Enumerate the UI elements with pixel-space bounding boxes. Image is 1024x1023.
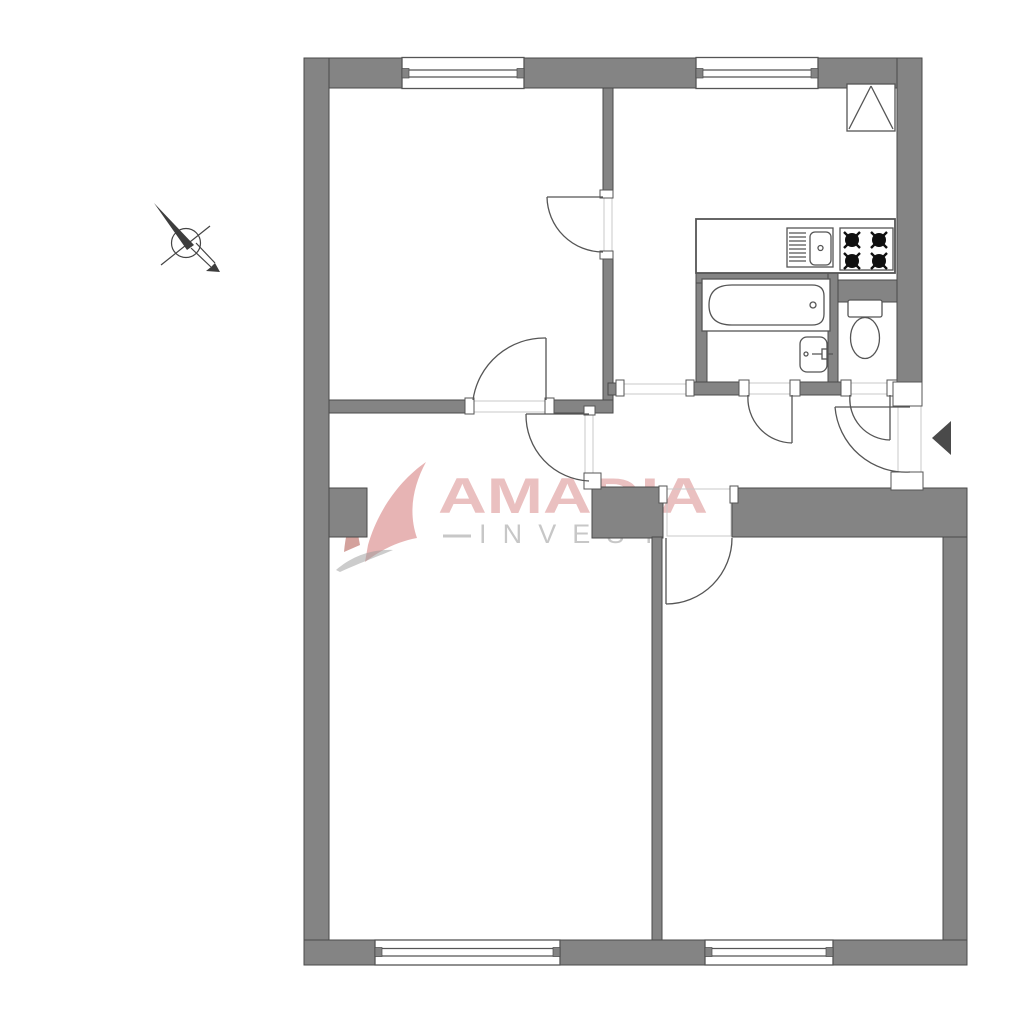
ventilation-shaft-icon — [847, 84, 895, 131]
window-bottom-right — [705, 940, 833, 965]
wall-right-upper — [897, 58, 922, 405]
window-bottom-left — [375, 940, 560, 965]
floor-plan-svg: AMADIA INVEST — [0, 0, 1024, 1023]
wall-top — [304, 58, 922, 88]
door-bottom-right-room — [666, 538, 732, 604]
door-bathroom — [748, 395, 792, 443]
window-top-right — [696, 58, 818, 89]
wall-hall-south-west-block — [329, 488, 367, 537]
door-wc — [850, 395, 890, 440]
entrance-arrow-icon — [932, 421, 951, 455]
window-top-left — [402, 58, 524, 89]
floor-plan-page: AMADIA INVEST — [0, 0, 1024, 1023]
wall-hall-south-right — [732, 488, 967, 537]
wall-hall-north-west-a — [329, 400, 473, 413]
wall-bottom-rooms-divider — [652, 537, 662, 940]
door-top-rooms — [547, 197, 603, 252]
door-bedroom1-hall — [473, 338, 546, 400]
wall-hall-north-west-b — [547, 400, 613, 413]
bathtub — [702, 279, 830, 331]
kitchen-sink — [787, 228, 833, 267]
wc — [848, 300, 882, 359]
north-arrow-icon — [154, 203, 220, 272]
wall-wc-north — [838, 280, 897, 302]
kitchen-counter — [696, 219, 895, 273]
wall-top-rooms-divider-upper — [603, 88, 613, 195]
bathroom — [702, 279, 833, 372]
wall-hall-south-mid — [592, 487, 663, 538]
toilet — [848, 300, 882, 359]
entrance-door — [835, 407, 910, 472]
stove — [840, 228, 893, 270]
wall-right-lower — [943, 488, 967, 965]
wall-left — [304, 58, 329, 965]
